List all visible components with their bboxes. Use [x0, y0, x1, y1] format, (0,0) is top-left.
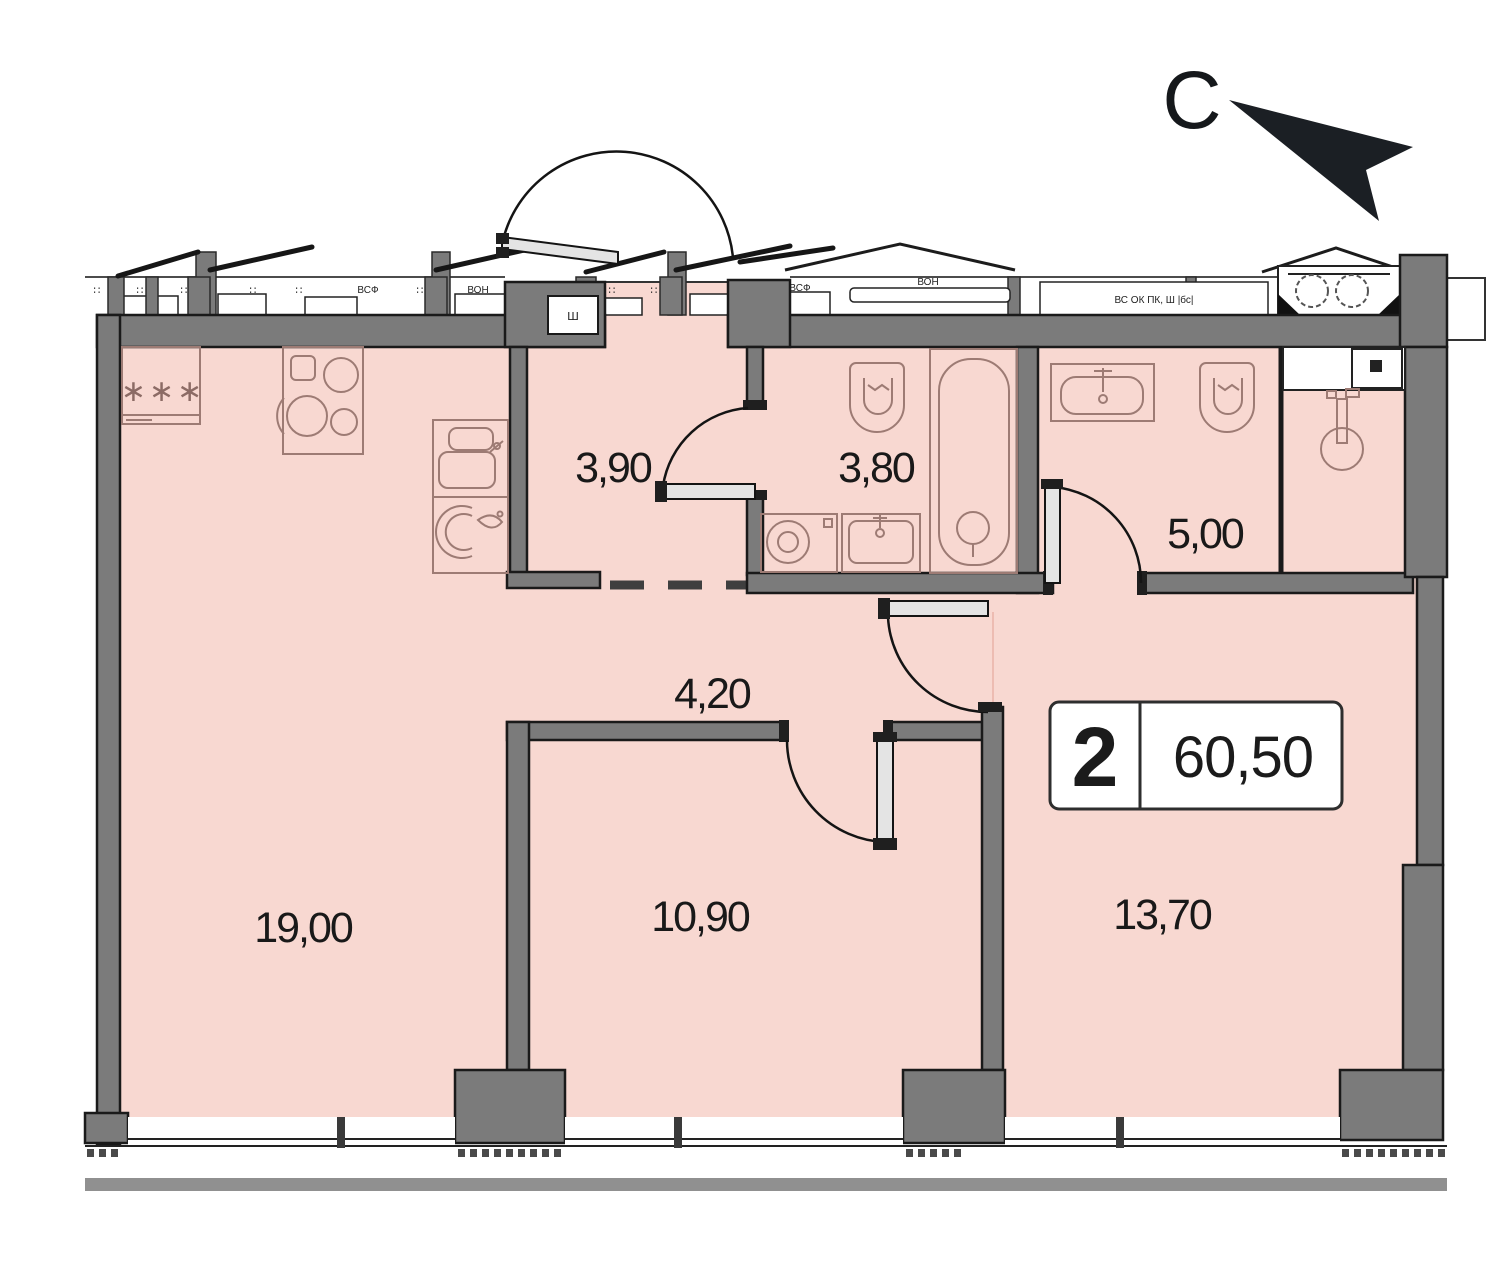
top-wall-right — [728, 315, 1440, 347]
facade-label: ВОН — [917, 277, 938, 288]
wet-zone-bottom-wall-left — [747, 573, 1053, 593]
window-band — [85, 1117, 1447, 1191]
plinth-bar — [85, 1178, 1447, 1191]
bedroom-right-wall — [982, 707, 1003, 1070]
facade-label: ВСФ — [357, 285, 379, 296]
neighbour-box — [1447, 278, 1485, 340]
facade-label: ВОН — [467, 285, 488, 296]
room-label-corridor: 4,20 — [674, 670, 751, 718]
corridor-bedroom-wall — [507, 722, 787, 740]
room-label-bathroom: 3,80 — [838, 444, 915, 492]
partition-bath-wc — [1017, 347, 1038, 593]
partition-foot — [507, 572, 600, 588]
electric-panel-icon — [1370, 360, 1382, 372]
room-label-toilet: 5,00 — [1167, 510, 1244, 558]
entrance-pier-right — [728, 280, 790, 347]
total-area: 60,50 — [1173, 725, 1313, 790]
partition-kitchen-hallway — [510, 347, 527, 575]
north-indicator: С — [1162, 55, 1413, 221]
bedroom-left-wall — [507, 722, 529, 1070]
north-arrow-icon — [1229, 100, 1413, 221]
right-outer-wall-top — [1405, 347, 1447, 577]
partition-hall-bath-top — [747, 347, 763, 408]
wet-zone-bottom-wall-right — [1141, 573, 1413, 593]
svg-text:∷: ∷ — [417, 284, 424, 297]
svg-text:∷: ∷ — [296, 284, 303, 297]
pier-hatch-ticks — [87, 1149, 1445, 1157]
window-livingroom — [1005, 1117, 1340, 1147]
top-right-wall — [1400, 255, 1447, 347]
vent-shaft — [1262, 248, 1408, 315]
vent-shaft-label: ВС ОК ПК, Ш |бс| — [1114, 294, 1193, 306]
entrance-door — [496, 152, 733, 264]
svg-text:∷: ∷ — [137, 284, 144, 297]
fridge-mark: ∗∗∗ — [121, 374, 205, 409]
bedroom-left-footing — [455, 1070, 565, 1143]
window-bedroom — [565, 1117, 903, 1147]
room-label-living-room: 13,70 — [1113, 891, 1212, 939]
right-outer-wall-mid — [1417, 577, 1443, 865]
svg-text:∷: ∷ — [250, 284, 257, 297]
open-window-sash-lines — [118, 246, 833, 276]
north-label: С — [1162, 55, 1221, 146]
window-living — [128, 1117, 455, 1147]
window-mullion — [674, 1117, 682, 1148]
bottom-left-corner — [85, 1113, 128, 1143]
left-outer-wall — [97, 315, 120, 1145]
svg-text:∷: ∷ — [94, 284, 101, 297]
room-label-hallway: 3,90 — [575, 444, 652, 492]
room-label-kitchen-living: 19,00 — [254, 904, 353, 952]
window-mullion — [1116, 1117, 1124, 1148]
right-corner-footing — [1340, 1070, 1443, 1140]
entrance-inset-label: Ш — [567, 310, 579, 323]
svg-text:∷: ∷ — [609, 284, 616, 297]
svg-text:∷: ∷ — [651, 284, 658, 297]
apartment-floor — [120, 281, 1440, 1117]
right-outer-wall-low — [1403, 865, 1443, 1070]
svg-text:∷: ∷ — [181, 284, 188, 297]
floor-plan-drawing: ∷ ∷ ∷ ∷ ∷ ∷ ∷ ∷ ВСФ ВОН ШКФ ИТ ВСФ ВОН В… — [0, 0, 1500, 1271]
rooms-count: 2 — [1072, 710, 1119, 804]
floor-plan-sheet: ∷ ∷ ∷ ∷ ∷ ∷ ∷ ∷ ВСФ ВОН ШКФ ИТ ВСФ ВОН В… — [0, 0, 1500, 1271]
bedroom-right-footing — [903, 1070, 1005, 1143]
window-mullion — [337, 1117, 345, 1148]
room-label-bedroom: 10,90 — [651, 893, 750, 941]
apartment-summary-badge: 2 60,50 — [1050, 702, 1342, 809]
